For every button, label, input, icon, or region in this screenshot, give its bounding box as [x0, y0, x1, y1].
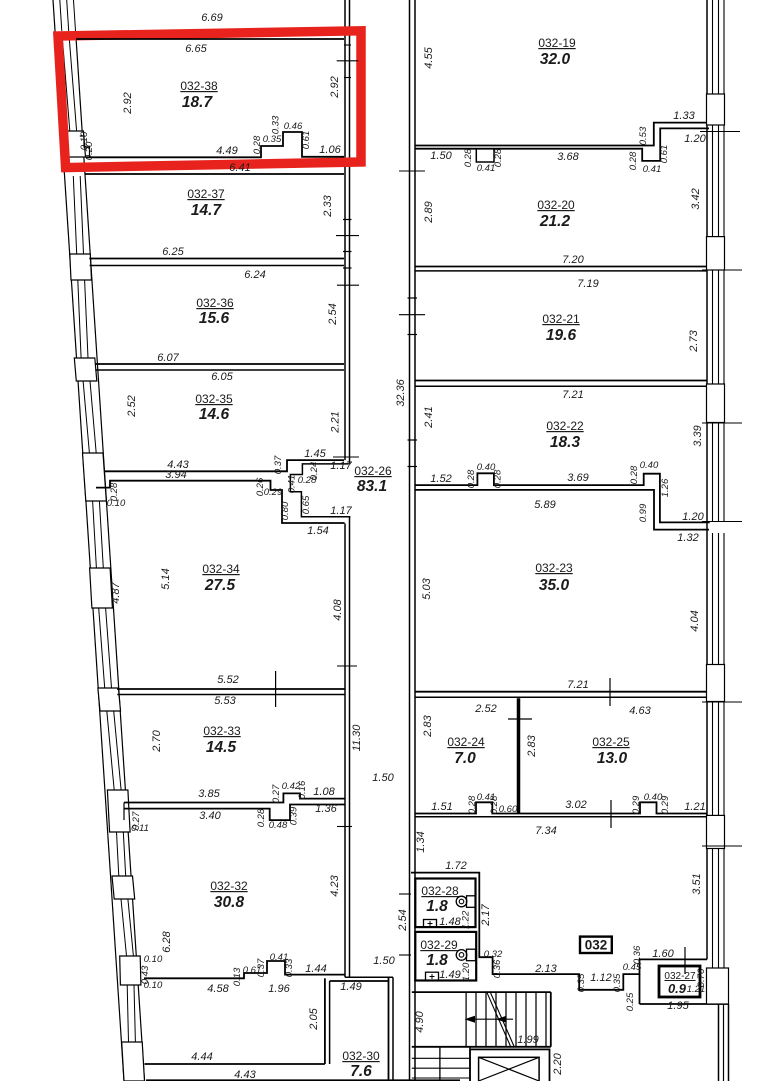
svg-text:4.90: 4.90 [414, 1010, 426, 1032]
svg-text:032-21: 032-21 [542, 312, 580, 326]
svg-text:7.21: 7.21 [562, 389, 583, 401]
svg-text:1.8: 1.8 [426, 898, 448, 915]
svg-text:4.87: 4.87 [110, 581, 122, 603]
svg-text:2.73: 2.73 [688, 329, 700, 352]
svg-text:2.70: 2.70 [151, 729, 163, 752]
svg-text:2.52: 2.52 [474, 703, 496, 715]
svg-text:1.20: 1.20 [684, 133, 706, 145]
svg-text:0.99: 0.99 [638, 503, 649, 522]
svg-text:4.44: 4.44 [191, 1051, 212, 1063]
svg-text:0.35: 0.35 [263, 134, 282, 145]
svg-text:4.08: 4.08 [332, 598, 344, 620]
svg-text:6.65: 6.65 [185, 43, 207, 55]
svg-text:0.28: 0.28 [256, 808, 267, 827]
svg-text:1.50: 1.50 [430, 150, 452, 162]
svg-text:1.52: 1.52 [430, 473, 451, 485]
svg-text:0.41: 0.41 [643, 164, 662, 175]
svg-text:0.29: 0.29 [264, 487, 283, 498]
svg-text:83.1: 83.1 [357, 478, 387, 495]
svg-text:0.27: 0.27 [271, 784, 282, 803]
svg-text:4.23: 4.23 [329, 874, 341, 896]
svg-text:032-34: 032-34 [202, 562, 240, 576]
svg-text:032: 032 [585, 938, 608, 953]
svg-text:13.0: 13.0 [597, 750, 628, 767]
svg-text:0.76: 0.76 [696, 968, 707, 987]
svg-text:5.52: 5.52 [217, 674, 238, 686]
svg-text:32.0: 32.0 [540, 51, 571, 68]
svg-text:18.7: 18.7 [182, 94, 214, 111]
svg-text:2.52: 2.52 [126, 395, 138, 417]
svg-text:1.49: 1.49 [439, 969, 460, 981]
svg-text:0.28: 0.28 [252, 135, 263, 154]
svg-text:6.69: 6.69 [201, 12, 222, 24]
svg-text:1.72: 1.72 [445, 860, 466, 872]
svg-text:2.92: 2.92 [122, 92, 134, 114]
svg-text:1.51: 1.51 [431, 801, 452, 813]
svg-text:1.20: 1.20 [461, 962, 472, 981]
svg-text:11.30: 11.30 [351, 724, 363, 752]
svg-text:1.34: 1.34 [415, 831, 427, 852]
svg-text:5.03: 5.03 [421, 577, 433, 599]
svg-text:1.99: 1.99 [517, 1034, 538, 1046]
svg-text:6.28: 6.28 [161, 930, 173, 952]
svg-text:1.26: 1.26 [660, 478, 671, 497]
svg-text:0.16: 0.16 [297, 780, 308, 799]
svg-text:1.95: 1.95 [667, 1000, 689, 1012]
svg-text:0.29: 0.29 [631, 795, 642, 814]
svg-text:4.55: 4.55 [423, 46, 435, 68]
svg-text:1.45: 1.45 [304, 448, 326, 460]
svg-text:0.46: 0.46 [284, 121, 303, 132]
svg-text:7.34: 7.34 [535, 825, 556, 837]
svg-text:5.53: 5.53 [214, 695, 236, 707]
svg-text:1.44: 1.44 [305, 963, 326, 975]
svg-text:3.51: 3.51 [691, 873, 703, 894]
svg-text:0.40: 0.40 [640, 460, 659, 471]
svg-text:0.80: 0.80 [280, 501, 291, 520]
svg-text:6.25: 6.25 [162, 246, 184, 258]
svg-text:14.5: 14.5 [206, 739, 237, 756]
svg-text:2.13: 2.13 [534, 963, 557, 975]
svg-text:1.12: 1.12 [590, 972, 611, 984]
svg-text:6.07: 6.07 [157, 352, 179, 364]
svg-text:14.6: 14.6 [199, 406, 230, 423]
svg-text:0.29: 0.29 [660, 795, 671, 814]
svg-text:7.19: 7.19 [577, 278, 598, 290]
svg-text:0.33: 0.33 [284, 958, 295, 977]
svg-text:0.37: 0.37 [256, 958, 267, 977]
svg-text:3.40: 3.40 [199, 810, 221, 822]
svg-text:1.48: 1.48 [439, 916, 461, 928]
svg-text:1.96: 1.96 [268, 983, 290, 995]
svg-text:1.36: 1.36 [315, 803, 337, 815]
svg-text:032-37: 032-37 [187, 187, 225, 201]
svg-text:7.20: 7.20 [562, 254, 584, 266]
svg-text:1.21: 1.21 [684, 801, 705, 813]
svg-text:032-25: 032-25 [592, 735, 630, 749]
svg-text:032-33: 032-33 [203, 724, 241, 738]
svg-text:1.17: 1.17 [330, 460, 352, 472]
svg-text:1.33: 1.33 [673, 110, 695, 122]
svg-text:3.94: 3.94 [165, 469, 186, 481]
svg-text:35.0: 35.0 [539, 577, 570, 594]
svg-text:0.10: 0.10 [107, 498, 126, 509]
svg-text:0.61: 0.61 [301, 131, 312, 150]
svg-text:0.61: 0.61 [659, 145, 670, 164]
svg-text:2.54: 2.54 [397, 909, 409, 931]
svg-text:4.04: 4.04 [689, 610, 701, 631]
svg-text:032-20: 032-20 [537, 198, 575, 212]
svg-text:4.63: 4.63 [629, 705, 651, 717]
svg-text:0.33: 0.33 [271, 115, 282, 134]
svg-text:3.69: 3.69 [567, 472, 588, 484]
svg-text:4.58: 4.58 [207, 983, 229, 995]
svg-text:7.0: 7.0 [454, 750, 476, 767]
svg-text:15.6: 15.6 [199, 310, 230, 327]
svg-text:1.08: 1.08 [313, 786, 335, 798]
svg-text:5.89: 5.89 [534, 499, 555, 511]
svg-text:0.20: 0.20 [84, 141, 95, 160]
svg-text:32.36: 32.36 [395, 378, 407, 406]
svg-text:0.36: 0.36 [492, 959, 503, 978]
svg-text:30.8: 30.8 [214, 894, 245, 911]
svg-text:0.11: 0.11 [131, 823, 149, 834]
svg-text:0.36: 0.36 [632, 945, 643, 964]
svg-text:2.54: 2.54 [327, 303, 339, 325]
svg-text:0.39: 0.39 [289, 806, 300, 825]
svg-text:1.50: 1.50 [373, 955, 395, 967]
svg-text:032-19: 032-19 [538, 36, 576, 50]
svg-text:0.10: 0.10 [144, 954, 163, 965]
svg-text:0.35: 0.35 [612, 973, 623, 992]
svg-text:3.68: 3.68 [557, 151, 579, 163]
svg-text:19.6: 19.6 [546, 327, 577, 344]
svg-text:0.9: 0.9 [668, 981, 687, 996]
svg-text:2.33: 2.33 [322, 194, 334, 217]
svg-text:6.05: 6.05 [211, 371, 233, 383]
svg-text:032-29: 032-29 [420, 938, 458, 952]
svg-text:0.35: 0.35 [576, 973, 587, 992]
svg-text:1.22: 1.22 [461, 910, 472, 929]
svg-text:0.53: 0.53 [638, 126, 649, 145]
svg-text:1.60: 1.60 [652, 948, 674, 960]
svg-text:0.28: 0.28 [466, 469, 477, 488]
svg-text:0.65: 0.65 [301, 495, 312, 514]
svg-text:1.17: 1.17 [330, 505, 352, 517]
svg-text:3.02: 3.02 [565, 799, 586, 811]
svg-text:6.41: 6.41 [229, 162, 250, 174]
svg-text:032-32: 032-32 [210, 879, 248, 893]
svg-text:2.17: 2.17 [480, 903, 492, 926]
svg-text:0.60: 0.60 [499, 804, 518, 815]
svg-text:4.43: 4.43 [234, 1069, 256, 1081]
svg-text:032-28: 032-28 [421, 884, 459, 898]
svg-text:4.49: 4.49 [216, 145, 237, 157]
svg-text:2.05: 2.05 [308, 1007, 320, 1030]
svg-text:0.48: 0.48 [269, 820, 288, 831]
svg-text:1.8: 1.8 [426, 952, 448, 969]
svg-text:1.20: 1.20 [682, 511, 704, 523]
svg-text:18.3: 18.3 [550, 434, 581, 451]
svg-text:032-36: 032-36 [196, 296, 234, 310]
svg-text:3.85: 3.85 [198, 788, 220, 800]
svg-text:2.21: 2.21 [330, 411, 342, 433]
svg-text:0.25: 0.25 [625, 992, 636, 1011]
svg-text:2.89: 2.89 [423, 201, 435, 223]
svg-text:0.28: 0.28 [493, 148, 504, 167]
svg-text:032-26: 032-26 [354, 464, 392, 478]
svg-text:7.6: 7.6 [350, 1063, 372, 1080]
svg-text:2.20: 2.20 [552, 1052, 564, 1075]
svg-text:2.41: 2.41 [423, 406, 435, 428]
svg-text:0.13: 0.13 [232, 967, 243, 986]
svg-text:7.21: 7.21 [567, 679, 588, 691]
svg-text:0.28: 0.28 [629, 465, 640, 484]
svg-text:1.54: 1.54 [307, 525, 328, 537]
svg-text:21.2: 21.2 [539, 213, 571, 230]
svg-text:0.10: 0.10 [144, 980, 163, 991]
svg-text:5.14: 5.14 [160, 568, 172, 589]
svg-text:032-35: 032-35 [195, 392, 233, 406]
svg-text:1.50: 1.50 [372, 772, 394, 784]
svg-text:0.28: 0.28 [628, 151, 639, 170]
svg-text:1.49: 1.49 [340, 981, 361, 993]
svg-text:032-30: 032-30 [342, 1049, 380, 1063]
svg-text:032-22: 032-22 [546, 419, 584, 433]
svg-text:0.28: 0.28 [298, 475, 317, 486]
svg-text:032-24: 032-24 [447, 735, 485, 749]
svg-text:14.7: 14.7 [191, 202, 223, 219]
svg-text:0.37: 0.37 [273, 455, 284, 474]
svg-text:032-23: 032-23 [535, 561, 573, 575]
svg-text:27.5: 27.5 [204, 577, 236, 594]
svg-text:2.83: 2.83 [526, 734, 538, 757]
svg-text:0.28: 0.28 [463, 148, 474, 167]
svg-text:3.39: 3.39 [692, 425, 704, 446]
svg-text:3.42: 3.42 [690, 188, 702, 209]
svg-text:6.24: 6.24 [244, 269, 265, 281]
svg-text:1.32: 1.32 [677, 532, 698, 544]
svg-text:1.06: 1.06 [319, 144, 341, 156]
svg-text:032-38: 032-38 [180, 79, 218, 93]
svg-text:2.83: 2.83 [422, 714, 434, 737]
svg-text:0.28: 0.28 [493, 469, 504, 488]
svg-text:0.41: 0.41 [287, 475, 298, 494]
svg-text:2.92: 2.92 [329, 76, 341, 98]
